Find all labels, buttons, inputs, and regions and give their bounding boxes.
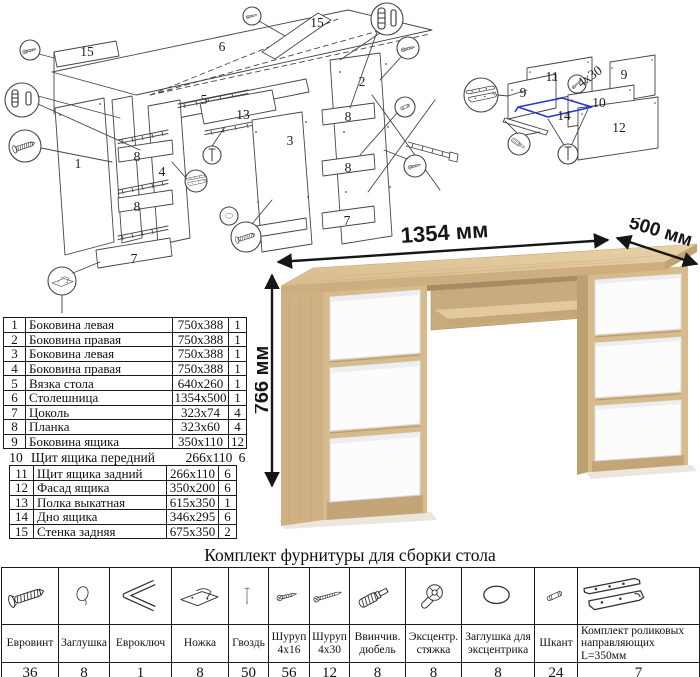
part-number-label: 13 [236,107,250,122]
hardware-name: Шуруп 4x16 [269,625,310,663]
dowel-screw-icon [350,571,402,621]
part-number-label: 11 [546,69,559,84]
right-drawers [595,274,681,461]
assembly-instruction-sheet: 15615518487133288711991014124x30 1Бокови… [0,0,700,677]
hex-key-icon [110,571,168,621]
left-drawers [330,290,420,502]
hardware-icon-cell [110,568,172,625]
hardware-kit-table-wrap: ЕвровинтЗаглушкаЕвроключНожкаГвоздьШуруп… [1,567,700,677]
part-number-label: 8 [345,109,352,124]
hardware-name: Ножка [172,625,229,663]
parts-row: 11Щит ящика задний266x1106 [10,466,237,481]
hardware-qty: 7 [578,663,700,677]
hardware-name: Евровинт [2,625,59,663]
part-qty: 6 [235,451,249,465]
foot-icon [172,571,225,621]
part-number-label: 7 [131,251,138,266]
parts-row: 6Столешница1354x5001 [4,390,247,405]
hardware-icon-cell [578,568,700,625]
hardware-kit-title: Комплект фурнитуры для сборки стола [0,545,700,566]
hardware-qty: 1 [110,663,172,677]
parts-row: 5Вязка стола640x2601 [4,376,247,391]
hardware-qty: 8 [59,663,110,677]
hardware-icon-cell [462,568,535,625]
part-number-label: 8 [134,149,141,164]
hardware-name: Эксцентр. стяжка [406,625,462,663]
parts-row: 13Полка выкатная615x3501 [10,495,237,510]
part-number-label: 15 [310,15,324,30]
hardware-name: Заглушка [59,625,110,663]
hardware-qty: 8 [172,663,229,677]
parts-row-10: 10 Щит ящика передний 266x110 6 [3,449,249,465]
hardware-callout-slides-drawer [464,78,508,112]
width-dimension-label: 1354 мм [400,218,489,248]
cap-icon [59,571,106,621]
hardware-callout-screw [20,40,54,60]
hardware-icon-cell [229,568,269,625]
part-number-label: 14 [557,108,571,123]
height-dimension-label: 766 мм [255,346,273,415]
parts-row: 4Боковина правая750x3881 [4,361,247,376]
hardware-callout-screw-4x16 [380,37,419,80]
hardware-callout-screw-rail [384,150,426,177]
part-number-label: 1 [75,156,82,171]
part-number-label: 6 [219,39,226,54]
part-number-label: 2 [359,74,366,89]
hardware-icon-cell [172,568,229,625]
part-number-label: 5 [201,92,208,107]
hardware-name: Шкант [535,625,578,663]
parts-row: 7Цоколь323x744 [4,405,247,420]
parts-list: 1Боковина левая750x38812Боковина правая7… [3,317,249,539]
parts-row: 14Дно ящика346x2956 [10,510,237,525]
hardware-icon-cell [310,568,350,625]
part-number-label: 8 [345,160,352,175]
hardware-name: Гвоздь [229,625,269,663]
parts-row: 15Стенка задняя675x3502 [10,524,237,539]
parts-row: 12Фасад ящика350x2006 [10,480,237,495]
part-size: 266x110 [183,451,235,465]
hardware-qty: 36 [2,663,59,677]
wood-dowel-icon [535,571,574,621]
part-number-label: 12 [612,120,626,135]
part-number-label: 8 [134,199,141,214]
hardware-name: Комплект роликовых направляющих L=350мм [578,625,700,663]
parts-row: 1Боковина левая750x3881 [4,318,247,333]
cam-cap-icon [462,571,531,621]
part-number-label: 9 [621,67,628,82]
part-number-label: 10 [592,95,606,110]
hardware-qty: 12 [310,663,350,677]
hardware-qty: 56 [269,663,310,677]
part-number-label: 9 [520,85,527,100]
parts-row: 2Боковина правая750x3881 [4,332,247,347]
part-name: Щит ящика передний [29,451,183,465]
parts-row: 8Планка323x604 [4,420,247,435]
hardware-name: Шуруп 4x30 [310,625,350,663]
hardware-callout-foot [48,262,100,313]
hardware-kit-table: ЕвровинтЗаглушкаЕвроключНожкаГвоздьШуруп… [1,567,700,677]
parts-row: 9Боковина ящика350x11012 [4,434,247,449]
parts-table-lower: 11Щит ящика задний266x110612Фасад ящика3… [9,465,237,539]
hardware-qty: 8 [350,663,406,677]
eurovint-icon [2,571,55,621]
hardware-callout-nail [558,144,578,164]
hardware-icon-cell [350,568,406,625]
part-number-label: 4 [159,164,166,179]
part-no: 10 [3,451,29,465]
screw-long-icon [310,571,346,621]
hardware-icon-cell [59,568,110,625]
roller-slides-icon [578,571,648,621]
hardware-name: Евроключ [110,625,172,663]
hardware-name: Ввинчив. дюбель [350,625,406,663]
hardware-icon-cell [535,568,578,625]
part-number-label: 15 [80,44,94,59]
desk-body [279,244,697,529]
cam-lock-icon [406,571,458,621]
screw-short-icon [269,571,306,621]
hardware-callout-dowel-drawer [505,121,540,155]
hardware-icon-cell [269,568,310,625]
hardware-icon-cell [406,568,462,625]
part-number-label: 3 [287,133,294,148]
hardware-name: Заглушка для эксцентрика [462,625,535,663]
hardware-qty: 50 [229,663,269,677]
desk-3d-render: 1354 мм 500 мм 766 мм [255,218,700,548]
parts-row: 3Боковина левая750x3881 [4,347,247,362]
nail-icon [229,571,265,621]
hardware-qty: 8 [406,663,462,677]
hardware-qty: 8 [462,663,535,677]
parts-table-upper: 1Боковина левая750x38812Боковина правая7… [3,317,247,449]
hardware-qty: 24 [535,663,578,677]
hardware-icon-cell [2,568,59,625]
